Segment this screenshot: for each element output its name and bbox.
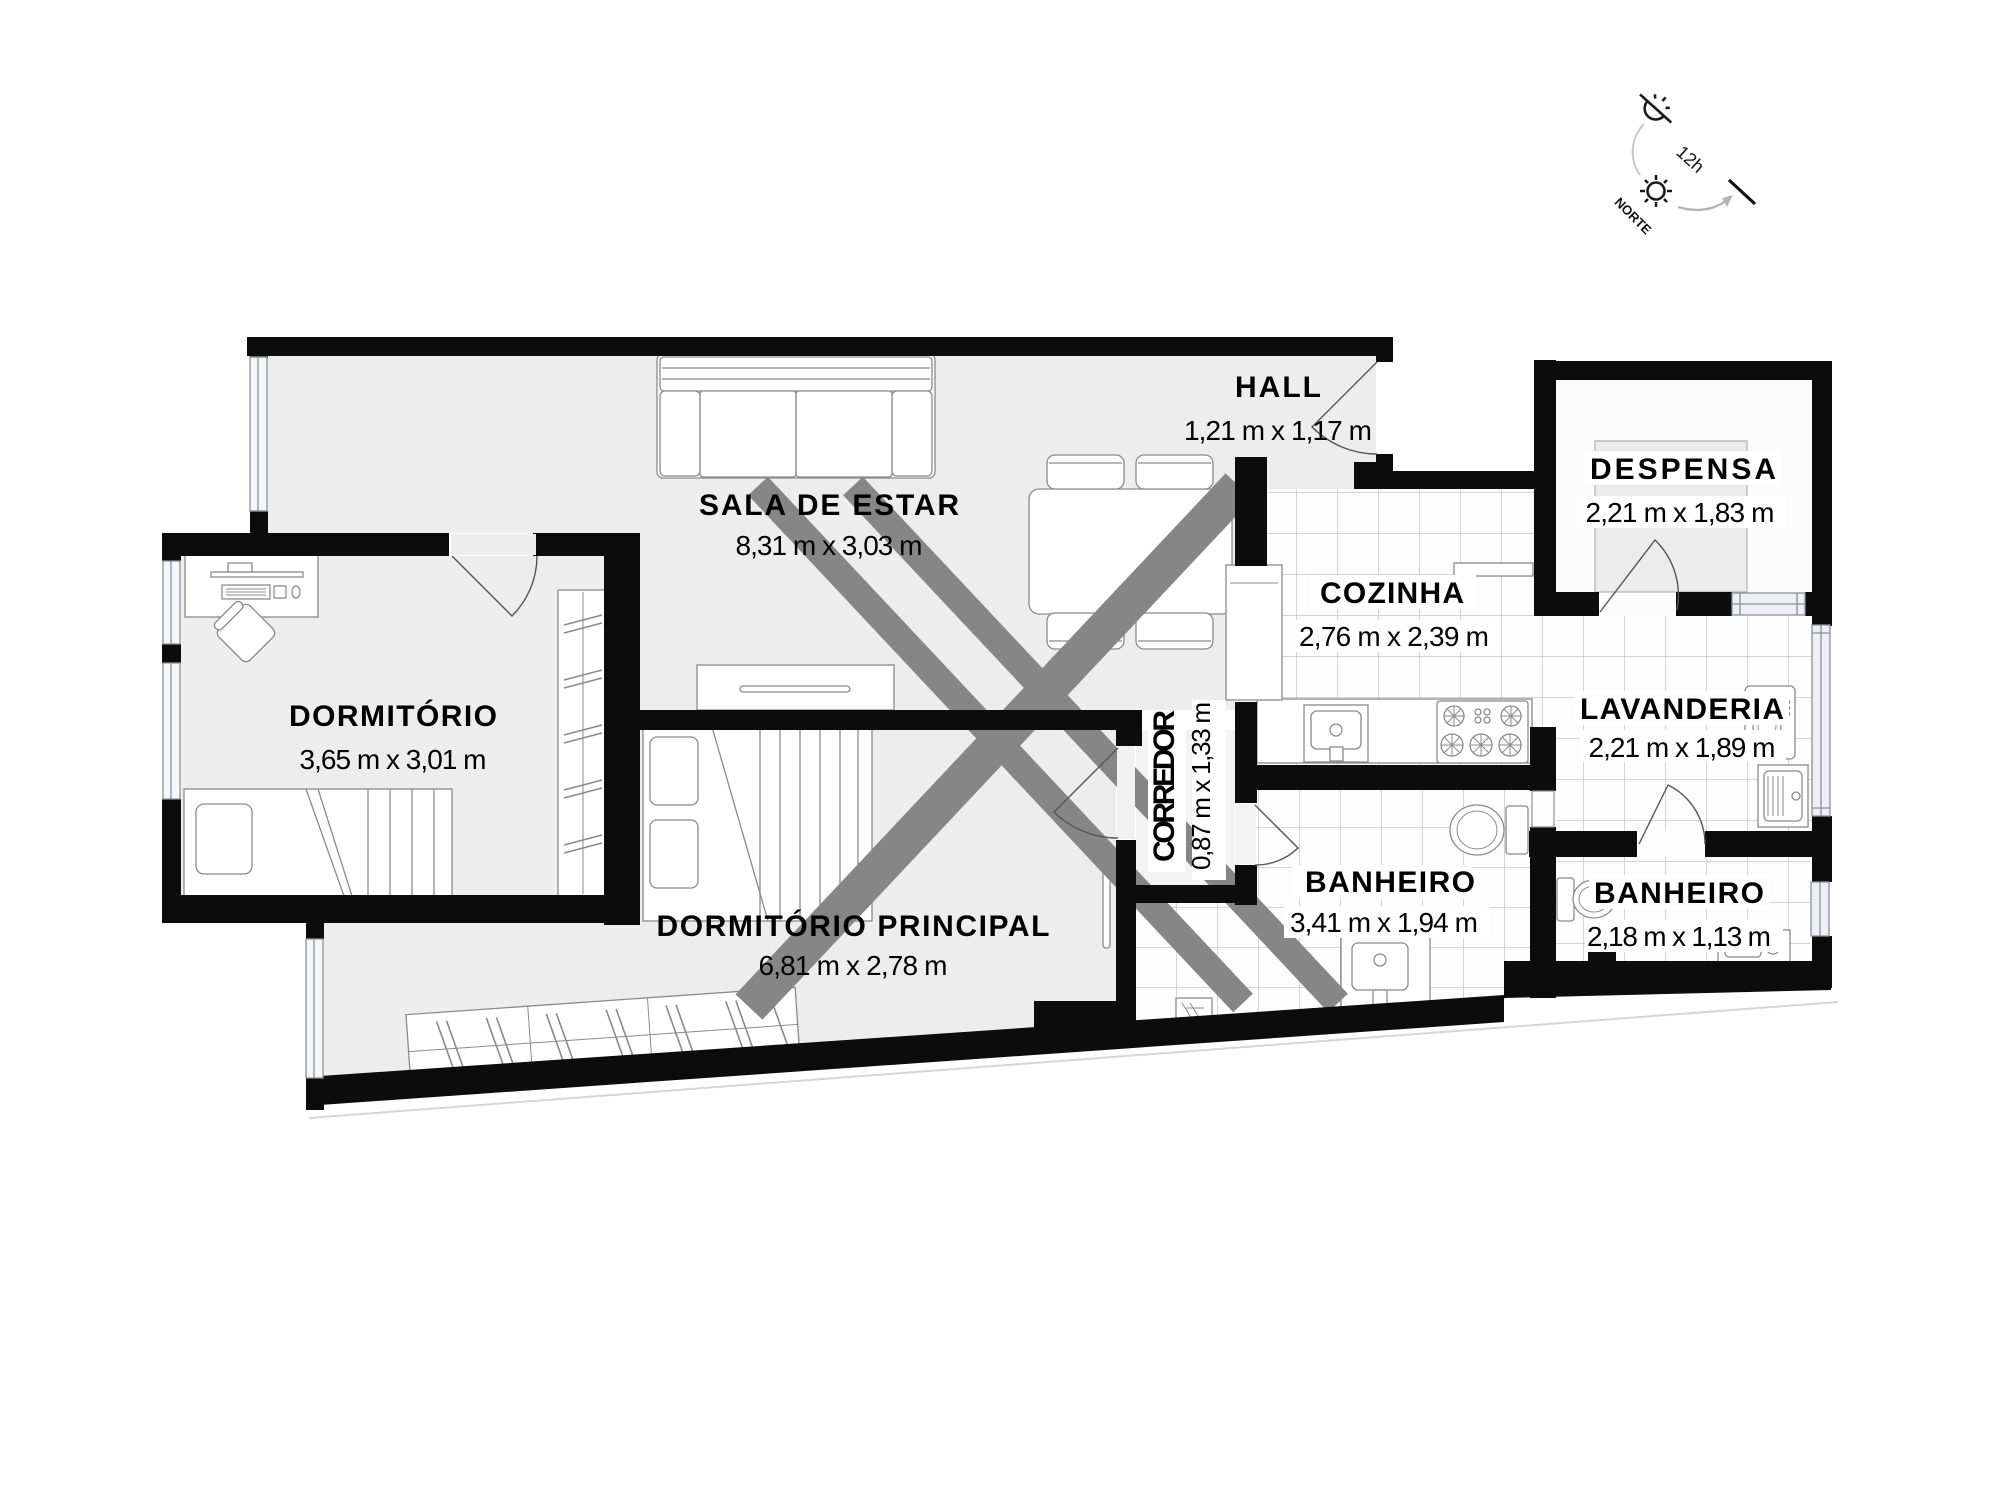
svg-text:3,41 m x 1,94 m: 3,41 m x 1,94 m xyxy=(1290,907,1478,938)
svg-text:BANHEIRO: BANHEIRO xyxy=(1305,866,1475,899)
svg-text:6,81 m x 2,78 m: 6,81 m x 2,78 m xyxy=(759,950,948,981)
svg-text:3,65 m x 3,01 m: 3,65 m x 3,01 m xyxy=(300,744,487,775)
svg-text:LAVANDERIA: LAVANDERIA xyxy=(1580,693,1784,726)
svg-text:DESPENSA: DESPENSA xyxy=(1590,453,1776,486)
svg-text:CORREDOR: CORREDOR xyxy=(1148,710,1181,862)
svg-text:2,21 m x 1,83 m: 2,21 m x 1,83 m xyxy=(1586,497,1775,528)
svg-text:DORMITÓRIO: DORMITÓRIO xyxy=(289,699,497,733)
svg-text:2,18 m x 1,13 m: 2,18 m x 1,13 m xyxy=(1587,921,1771,952)
svg-text:2,21 m x 1,89 m: 2,21 m x 1,89 m xyxy=(1589,732,1776,763)
svg-text:DORMITÓRIO PRINCIPAL: DORMITÓRIO PRINCIPAL xyxy=(657,909,1050,943)
svg-text:COZINHA: COZINHA xyxy=(1320,577,1464,610)
svg-text:0,87 m x 1,33 m: 0,87 m x 1,33 m xyxy=(1186,702,1216,870)
svg-text:HALL: HALL xyxy=(1235,371,1321,404)
svg-text:2,76 m x 2,39 m: 2,76 m x 2,39 m xyxy=(1299,621,1489,652)
svg-text:8,31 m x 3,03 m: 8,31 m x 3,03 m xyxy=(736,530,923,561)
svg-text:SALA DE ESTAR: SALA DE ESTAR xyxy=(699,489,959,522)
svg-text:1,21 m x 1,17 m: 1,21 m x 1,17 m xyxy=(1184,415,1372,446)
svg-text:BANHEIRO: BANHEIRO xyxy=(1594,877,1764,910)
